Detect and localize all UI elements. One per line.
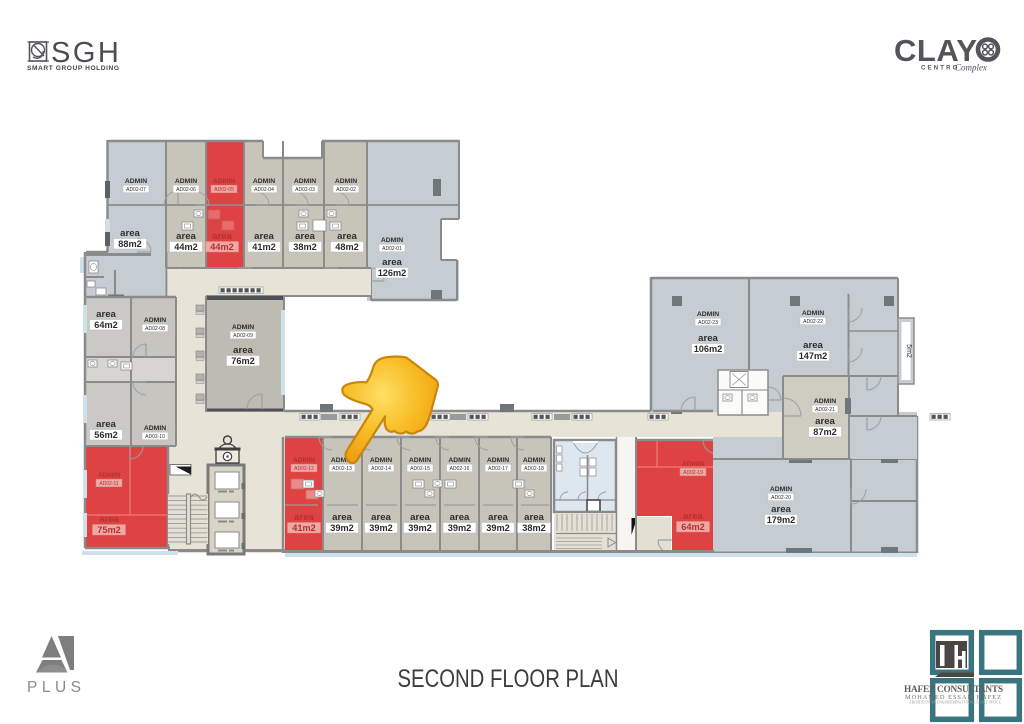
svg-text:area: area (332, 512, 352, 523)
svg-text:44m2: 44m2 (174, 242, 198, 252)
svg-text:area: area (96, 419, 116, 430)
svg-text:AD02-01: AD02-01 (382, 246, 402, 252)
svg-text:area: area (99, 514, 119, 525)
svg-text:ADMIN: ADMIN (381, 237, 403, 244)
svg-text:area: area (450, 512, 470, 523)
svg-text:area: area (337, 231, 357, 242)
svg-text:ADMIN: ADMIN (294, 178, 316, 185)
svg-text:ADMIN: ADMIN (697, 311, 719, 318)
svg-text:39m2: 39m2 (486, 523, 510, 533)
svg-text:AD02-22: AD02-22 (803, 319, 823, 325)
svg-text:39m2: 39m2 (330, 523, 354, 533)
svg-text:41m2: 41m2 (292, 523, 316, 533)
svg-text:AD02-18: AD02-18 (524, 466, 544, 472)
svg-text:PLUS: PLUS (27, 679, 85, 696)
svg-text:ADMIN: ADMIN (802, 310, 824, 317)
svg-text:AD02-12: AD02-12 (294, 466, 314, 472)
svg-text:AD02-07: AD02-07 (126, 187, 146, 193)
svg-text:AD02-13: AD02-13 (332, 466, 352, 472)
svg-text:ADMIN: ADMIN (253, 178, 275, 185)
svg-text:5m2: 5m2 (905, 344, 912, 358)
svg-text:AD02-21: AD02-21 (815, 407, 835, 413)
svg-text:ADMIN: ADMIN (232, 324, 254, 331)
svg-text:AD02-06: AD02-06 (176, 187, 196, 193)
svg-text:147m2: 147m2 (799, 351, 828, 361)
svg-text:38m2: 38m2 (293, 242, 317, 252)
svg-text:64m2: 64m2 (94, 320, 118, 330)
svg-text:AD02-15: AD02-15 (410, 466, 430, 472)
svg-text:area: area (294, 512, 314, 523)
svg-text:39m2: 39m2 (408, 523, 432, 533)
svg-text:AD02-04: AD02-04 (254, 187, 274, 193)
svg-text:126m2: 126m2 (378, 268, 407, 278)
svg-text:area: area (212, 231, 232, 242)
svg-text:AD02-14: AD02-14 (371, 466, 391, 472)
svg-text:area: area (254, 231, 274, 242)
svg-text:SECOND FLOOR PLAN: SECOND FLOOR PLAN (398, 665, 619, 693)
svg-text:area: area (176, 231, 196, 242)
svg-text:64m2: 64m2 (681, 522, 705, 532)
svg-text:AD02-10: AD02-10 (145, 434, 165, 440)
svg-text:AD02-16: AD02-16 (450, 466, 470, 472)
svg-text:Complex: Complex (955, 63, 987, 73)
svg-text:area: area (803, 340, 823, 351)
svg-text:87m2: 87m2 (813, 427, 837, 437)
svg-text:ADMIN: ADMIN (213, 178, 235, 185)
svg-text:41m2: 41m2 (252, 242, 276, 252)
svg-text:ADMIN: ADMIN (523, 457, 545, 464)
svg-text:area: area (233, 345, 253, 356)
svg-text:AD02-11: AD02-11 (99, 481, 119, 487)
svg-text:ADMIN: ADMIN (487, 457, 509, 464)
svg-text:area: area (96, 309, 116, 320)
svg-text:AD02-02: AD02-02 (336, 187, 356, 193)
svg-text:ADMIN: ADMIN (175, 178, 197, 185)
svg-text:ADMIN: ADMIN (448, 457, 470, 464)
svg-text:ADMIN: ADMIN (814, 398, 836, 405)
svg-text:56m2: 56m2 (94, 430, 118, 440)
svg-text:ADMIN: ADMIN (770, 486, 792, 493)
svg-text:area: area (295, 231, 315, 242)
svg-text:ARCHITECTURE ENGINEERING CONSU: ARCHITECTURE ENGINEERING CONSULTANCY OFF… (909, 701, 1002, 705)
svg-text:AD02-09: AD02-09 (233, 333, 253, 339)
svg-text:area: area (771, 504, 791, 515)
svg-text:106m2: 106m2 (694, 344, 723, 354)
svg-text:area: area (382, 257, 402, 268)
svg-text:CENTRO: CENTRO (921, 66, 960, 72)
svg-text:76m2: 76m2 (231, 356, 255, 366)
svg-text:ADMIN: ADMIN (370, 457, 392, 464)
svg-text:SMART GROUP HOLDING: SMART GROUP HOLDING (27, 65, 120, 72)
svg-text:area: area (698, 333, 718, 344)
svg-text:area: area (120, 228, 140, 239)
svg-text:44m2: 44m2 (210, 242, 234, 252)
svg-text:area: area (815, 416, 835, 427)
svg-text:39m2: 39m2 (448, 523, 472, 533)
svg-text:area: area (410, 512, 430, 523)
svg-text:179m2: 179m2 (767, 515, 796, 525)
svg-text:ADMIN: ADMIN (293, 457, 315, 464)
svg-text:area: area (683, 511, 703, 522)
svg-text:AD02-17: AD02-17 (488, 466, 508, 472)
svg-text:AD02-23: AD02-23 (698, 320, 718, 326)
svg-text:AD02-20: AD02-20 (771, 495, 791, 501)
svg-text:48m2: 48m2 (335, 242, 359, 252)
svg-text:88m2: 88m2 (118, 239, 142, 249)
svg-text:38m2: 38m2 (522, 523, 546, 533)
svg-text:area: area (371, 512, 391, 523)
svg-text:75m2: 75m2 (97, 525, 121, 535)
svg-text:ADMIN: ADMIN (409, 457, 431, 464)
svg-text:area: area (524, 512, 544, 523)
svg-text:ADMIN: ADMIN (98, 472, 120, 479)
svg-text:ADMIN: ADMIN (335, 178, 357, 185)
svg-text:ADMIN: ADMIN (125, 178, 147, 185)
svg-text:AD02-19: AD02-19 (683, 470, 703, 476)
svg-text:AD02-05: AD02-05 (214, 187, 234, 193)
svg-text:ADMIN: ADMIN (144, 425, 166, 432)
svg-text:AD02-03: AD02-03 (295, 187, 315, 193)
svg-text:area: area (488, 512, 508, 523)
svg-text:39m2: 39m2 (369, 523, 393, 533)
svg-text:AD02-08: AD02-08 (145, 326, 165, 332)
svg-text:ADMIN: ADMIN (682, 461, 704, 468)
svg-text:ADMIN: ADMIN (144, 317, 166, 324)
